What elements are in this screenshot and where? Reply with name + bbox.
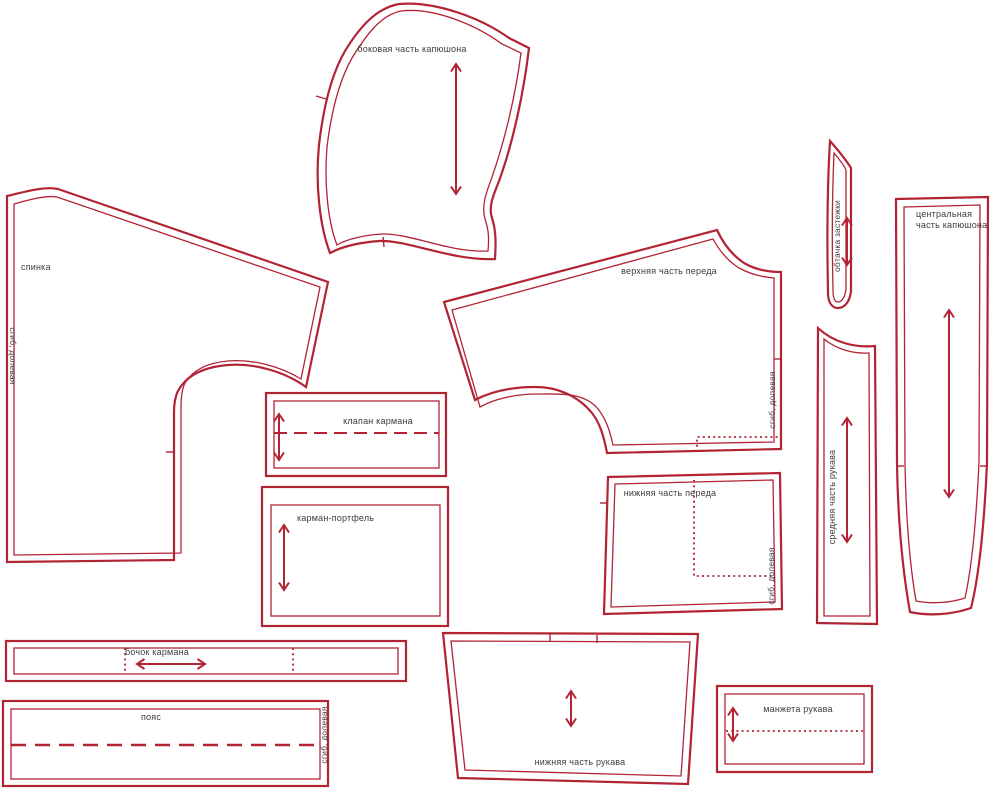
label-sleeve-cuff: манжета рукава (763, 704, 832, 714)
label-sleeve-middle: средняя часть рукава (827, 450, 837, 545)
piece-hood-side (316, 4, 529, 259)
piece-pocket-side (6, 641, 406, 681)
piece-sleeve-cuff (717, 686, 872, 772)
label-sleeve-lower: нижняя часть рукава (535, 757, 626, 767)
piece-belt (3, 701, 328, 786)
label-back: спинка (21, 262, 51, 272)
label-hood-side: боковая часть капюшона (357, 44, 466, 54)
notch (316, 96, 326, 99)
piece-back (7, 188, 328, 562)
label-pocket-portfolio: карман-портфель (297, 513, 374, 523)
grain-note-upper-front: сгиб, долевая (767, 371, 777, 428)
label-pocket-side: бочок кармана (125, 647, 189, 657)
piece-hood-center (896, 197, 988, 614)
label-upper-front: верхняя часть переда (621, 266, 717, 276)
grain-note-back: сгиб, долевая (8, 327, 18, 384)
grain-note-belt: сгиб, долевая (319, 706, 329, 763)
grain-note-lower-front: сгиб, долевая (766, 547, 776, 604)
piece-sleeve-middle (817, 328, 877, 624)
label-fastening-facing: обтачка застежки (832, 200, 842, 272)
pattern-sheet: боковая часть капюшона спинка сгиб, доле… (0, 0, 1000, 790)
pattern-outlines (0, 0, 1000, 790)
label-pocket-flap: клапан кармана (343, 416, 413, 426)
label-belt: пояс (141, 712, 161, 722)
label-hood-center: центральная часть капюшона (916, 209, 992, 231)
piece-upper-front (444, 230, 781, 453)
label-lower-front: нижняя часть переда (624, 488, 717, 498)
piece-pocket-portfolio (262, 487, 448, 626)
notch (383, 237, 384, 247)
piece-pocket-flap (266, 393, 446, 476)
